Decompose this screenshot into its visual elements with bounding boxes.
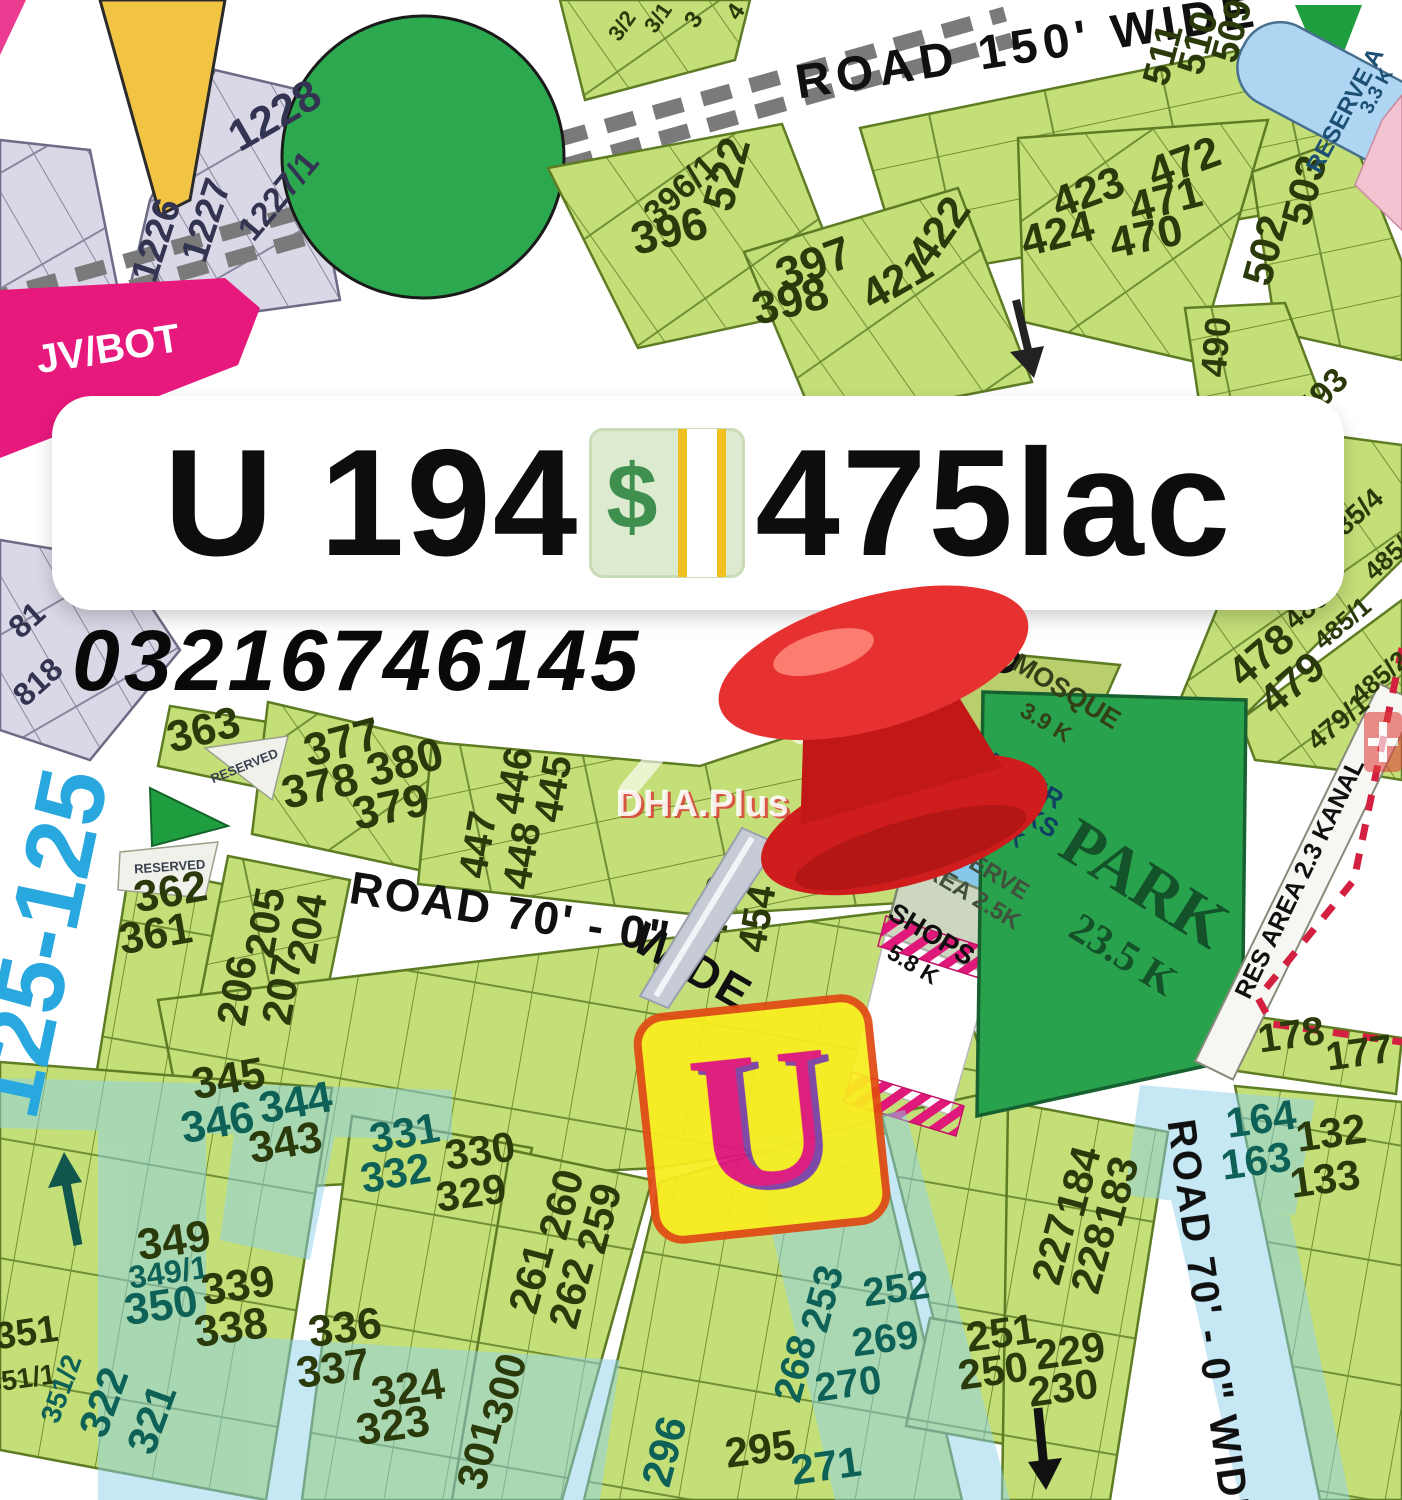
map-label: DHA.Plus bbox=[615, 783, 788, 825]
marker-letter: U bbox=[682, 1015, 842, 1224]
map-label: 56 bbox=[846, 720, 896, 770]
map-label: 55 bbox=[829, 763, 879, 813]
plot-map-screenshot: 12281227/11227122681818JV/BOT3/23/134ROA… bbox=[0, 0, 1402, 1500]
map-label: 178 bbox=[1255, 1009, 1327, 1062]
dollar-sign: $ bbox=[606, 445, 659, 550]
map-label: 323 bbox=[353, 1396, 433, 1455]
plot-id-text: U 194 bbox=[164, 416, 580, 591]
price-banner: U 194 $ 475lac bbox=[52, 396, 1344, 610]
map-label: 250 bbox=[955, 1342, 1031, 1398]
map-label: 230 bbox=[1025, 1359, 1101, 1415]
map-label: 337 bbox=[293, 1339, 373, 1398]
map-label: 270 bbox=[812, 1358, 884, 1411]
map-label: 350 bbox=[121, 1276, 201, 1335]
phone-number: 03216746145 bbox=[72, 612, 642, 711]
location-marker-u: U bbox=[631, 991, 894, 1247]
map-label: 490 bbox=[1193, 315, 1239, 378]
map-label: 269 bbox=[849, 1313, 921, 1366]
map-label: 295 bbox=[722, 1420, 798, 1476]
banknote-emoji-icon: $ bbox=[589, 428, 745, 578]
map-label: 351 bbox=[0, 1308, 61, 1358]
map-label: 271 bbox=[788, 1437, 864, 1493]
map-canvas: 12281227/11227122681818JV/BOT3/23/134ROA… bbox=[0, 0, 1402, 1500]
map-label: 133 bbox=[1287, 1150, 1363, 1206]
map-label: 132 bbox=[1293, 1104, 1369, 1160]
map-label: 163 bbox=[1218, 1132, 1294, 1188]
map-label: 329 bbox=[433, 1164, 509, 1220]
price-text: 475lac bbox=[755, 416, 1232, 591]
map-label: 338 bbox=[191, 1298, 271, 1357]
roundabout-circle bbox=[282, 16, 564, 298]
map-label: 177 bbox=[1323, 1027, 1395, 1080]
map-label: 252 bbox=[860, 1263, 932, 1316]
